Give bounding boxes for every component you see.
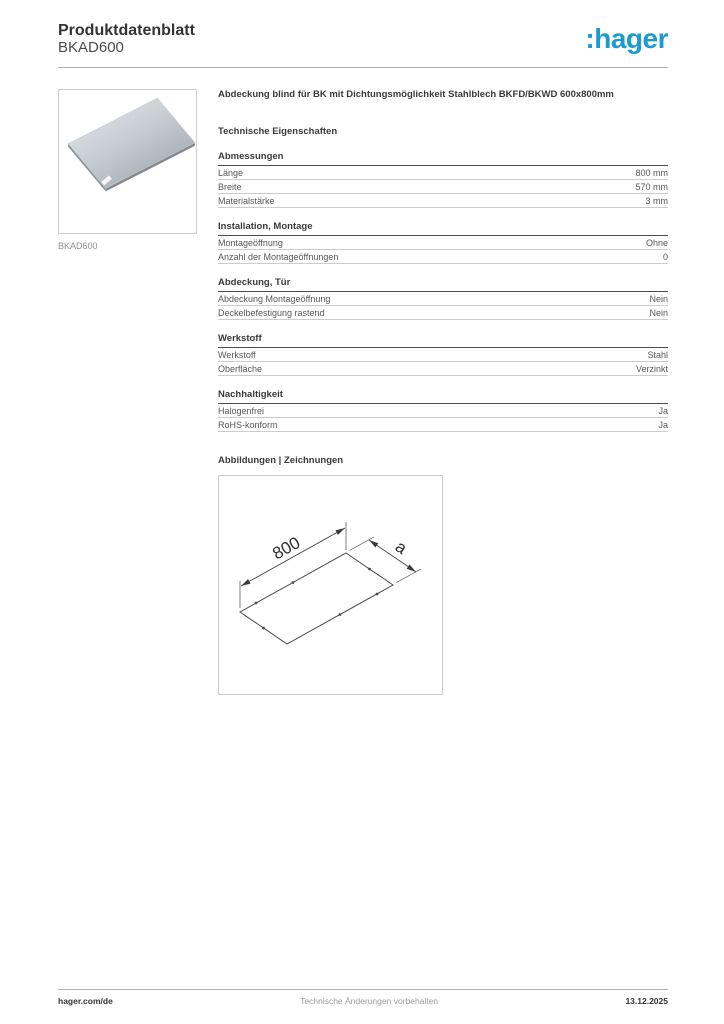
footer-website: hager.com/de [58, 996, 113, 1006]
section-title: Nachhaltigkeit [218, 389, 668, 404]
table-row: Oberfläche Verzinkt [218, 362, 668, 376]
section-nachhaltigkeit: Nachhaltigkeit Halogenfrei Ja RoHS-konfo… [218, 389, 668, 432]
section-title: Installation, Montage [218, 221, 668, 236]
row-label: Breite [218, 182, 242, 192]
table-row: Länge 800 mm [218, 166, 668, 180]
row-label: RoHS-konform [218, 420, 278, 430]
table-row: RoHS-konform Ja [218, 418, 668, 432]
table-row: Materialstärke 3 mm [218, 194, 668, 208]
header: Produktdatenblatt BKAD600 :hager [0, 0, 724, 56]
row-label: Deckelbefestigung rastend [218, 308, 325, 318]
row-label: Montageöffnung [218, 238, 283, 248]
hager-logo: :hager [585, 24, 668, 54]
header-titles: Produktdatenblatt BKAD600 [58, 22, 195, 56]
page-title: Produktdatenblatt [58, 22, 195, 39]
dimension-label-length: 800 [269, 533, 303, 563]
row-value: Verzinkt [636, 364, 668, 374]
row-label: Halogenfrei [218, 406, 264, 416]
table-row: Breite 570 mm [218, 180, 668, 194]
row-value: Ja [658, 406, 668, 416]
table-row: Abdeckung Montageöffnung Nein [218, 292, 668, 306]
product-code: BKAD600 [58, 39, 195, 56]
dimension-label-width: a [392, 537, 411, 558]
table-row: Anzahl der Montageöffnungen 0 [218, 250, 668, 264]
row-label: Materialstärke [218, 196, 275, 206]
row-label: Abdeckung Montageöffnung [218, 294, 330, 304]
section-title: Abmessungen [218, 151, 668, 166]
product-description: Abdeckung blind für BK mit Dichtungsmögl… [218, 89, 668, 101]
row-label: Werkstoff [218, 350, 256, 360]
product-photo-steel-plate [59, 90, 196, 233]
section-title: Werkstoff [218, 333, 668, 348]
row-value: 800 mm [635, 168, 668, 178]
row-value: Ohne [646, 238, 668, 248]
row-label: Anzahl der Montageöffnungen [218, 252, 338, 262]
table-row: Montageöffnung Ohne [218, 236, 668, 250]
section-werkstoff: Werkstoff Werkstoff Stahl Oberfläche Ver… [218, 333, 668, 376]
datasheet-page: Produktdatenblatt BKAD600 :hager [0, 0, 724, 1024]
section-abdeckung-tuer: Abdeckung, Tür Abdeckung Montageöffnung … [218, 277, 668, 320]
right-column: Abdeckung blind für BK mit Dichtungsmögl… [218, 89, 668, 695]
footer-date: 13.12.2025 [625, 996, 668, 1006]
footer-disclaimer: Technische Änderungen vorbehalten [300, 996, 438, 1006]
row-value: 570 mm [635, 182, 668, 192]
dimension-drawing: 800 a [219, 476, 442, 694]
section-abmessungen: Abmessungen Länge 800 mm Breite 570 mm M… [218, 151, 668, 208]
tech-properties-heading: Technische Eigenschaften [218, 126, 668, 138]
row-label: Oberfläche [218, 364, 262, 374]
row-value: Nein [649, 308, 668, 318]
table-row: Werkstoff Stahl [218, 348, 668, 362]
row-value: 3 mm [646, 196, 669, 206]
product-image [58, 89, 197, 234]
table-row: Deckelbefestigung rastend Nein [218, 306, 668, 320]
row-value: Ja [658, 420, 668, 430]
main-content: BKAD600 Abdeckung blind für BK mit Dicht… [0, 68, 724, 695]
table-row: Halogenfrei Ja [218, 404, 668, 418]
left-column: BKAD600 [58, 89, 218, 695]
row-label: Länge [218, 168, 243, 178]
technical-drawing: 800 a [218, 475, 443, 695]
row-value: Stahl [647, 350, 668, 360]
section-installation-montage: Installation, Montage Montageöffnung Ohn… [218, 221, 668, 264]
row-value: Nein [649, 294, 668, 304]
product-image-caption: BKAD600 [58, 241, 218, 251]
section-title: Abdeckung, Tür [218, 277, 668, 292]
footer: hager.com/de Technische Änderungen vorbe… [58, 989, 668, 1006]
drawings-heading: Abbildungen | Zeichnungen [218, 455, 668, 467]
row-value: 0 [663, 252, 668, 262]
